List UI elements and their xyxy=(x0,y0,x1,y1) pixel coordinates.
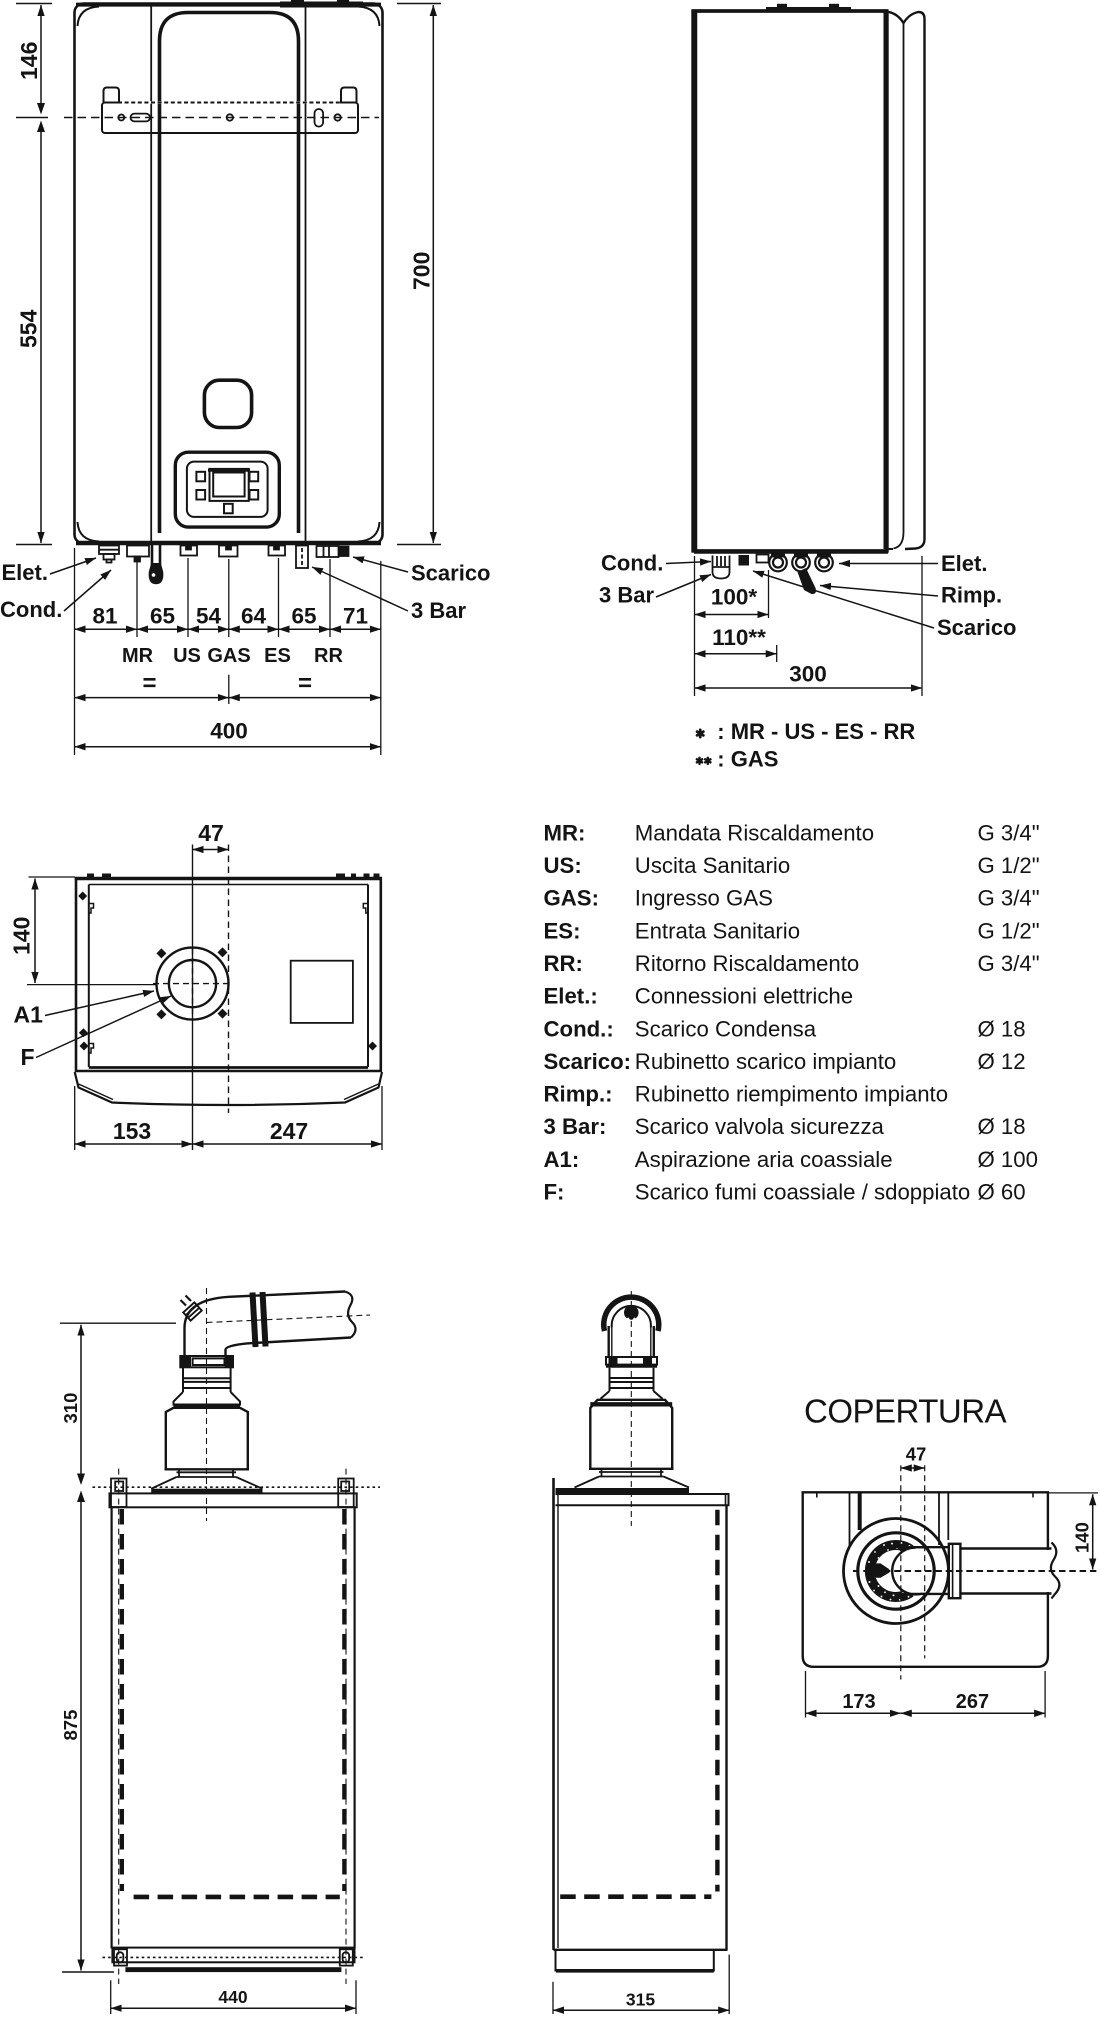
svg-text:: MR - US - ES - RR: : MR - US - ES - RR xyxy=(717,719,915,744)
svg-text:Scarico Condensa: Scarico Condensa xyxy=(635,1016,817,1041)
svg-text:Ø 18: Ø 18 xyxy=(978,1114,1026,1139)
svg-text:Cond.: Cond. xyxy=(0,597,62,622)
svg-text:54: 54 xyxy=(196,604,222,629)
svg-text:Mandata Riscaldamento: Mandata Riscaldamento xyxy=(635,820,874,845)
svg-text:Rubinetto riempimento impianto: Rubinetto riempimento impianto xyxy=(635,1082,948,1107)
svg-text:3 Bar: 3 Bar xyxy=(411,598,466,623)
svg-text:Cond.: Cond. xyxy=(601,551,663,576)
svg-text:Uscita Sanitario: Uscita Sanitario xyxy=(635,853,790,878)
svg-text:GAS:: GAS: xyxy=(544,886,599,911)
svg-text:Scarico: Scarico xyxy=(937,615,1017,640)
svg-text:GAS: GAS xyxy=(207,645,250,667)
svg-text:ES: ES xyxy=(264,645,291,667)
svg-text:=: = xyxy=(142,670,156,697)
svg-text:65: 65 xyxy=(291,604,316,629)
svg-text:Ø 18: Ø 18 xyxy=(978,1016,1026,1041)
svg-text:Connessioni elettriche: Connessioni elettriche xyxy=(635,984,853,1009)
svg-text:US:: US: xyxy=(544,853,582,878)
svg-text:100*: 100* xyxy=(711,585,758,610)
svg-text:3 Bar: 3 Bar xyxy=(599,583,654,608)
svg-text:267: 267 xyxy=(956,1691,989,1713)
svg-text:MR:: MR: xyxy=(544,820,586,845)
svg-text:Rimp.: Rimp. xyxy=(941,583,1002,608)
svg-text:47: 47 xyxy=(198,820,224,846)
svg-text:71: 71 xyxy=(343,604,368,629)
svg-text:COPERTURA: COPERTURA xyxy=(804,1393,1007,1430)
svg-text:Elet.: Elet. xyxy=(2,560,48,585)
svg-text:Scarico fumi coassiale / sdopp: Scarico fumi coassiale / sdoppiato xyxy=(635,1180,970,1205)
svg-text:G 3/4": G 3/4" xyxy=(978,886,1040,911)
svg-text:Scarico:: Scarico: xyxy=(544,1049,632,1074)
svg-text:Ritorno Riscaldamento: Ritorno Riscaldamento xyxy=(635,951,859,976)
svg-text:F:: F: xyxy=(544,1180,565,1205)
svg-text:A1: A1 xyxy=(14,1002,44,1028)
svg-text:G 3/4": G 3/4" xyxy=(978,951,1040,976)
svg-text:173: 173 xyxy=(842,1691,875,1713)
svg-text:3 Bar:: 3 Bar: xyxy=(544,1114,607,1139)
svg-text:140: 140 xyxy=(1072,1522,1093,1553)
svg-text:Elet.: Elet. xyxy=(941,551,987,576)
svg-text:US: US xyxy=(173,645,201,667)
svg-text:700: 700 xyxy=(409,252,435,290)
svg-text:400: 400 xyxy=(210,719,248,744)
svg-text:310: 310 xyxy=(60,1393,81,1424)
svg-text:G 1/2": G 1/2" xyxy=(978,853,1040,878)
svg-text:Scarico: Scarico xyxy=(411,561,491,586)
svg-text:F: F xyxy=(21,1044,35,1070)
svg-text:ES:: ES: xyxy=(544,918,581,943)
svg-text:146: 146 xyxy=(16,42,42,80)
svg-text:Ingresso GAS: Ingresso GAS xyxy=(635,886,773,911)
svg-text:Entrata Sanitario: Entrata Sanitario xyxy=(635,918,800,943)
svg-text:=: = xyxy=(298,670,312,697)
svg-text:Cond.:: Cond.: xyxy=(544,1016,614,1041)
svg-text:Scarico valvola sicurezza: Scarico valvola sicurezza xyxy=(635,1114,885,1139)
svg-text:47: 47 xyxy=(906,1444,927,1465)
svg-text:65: 65 xyxy=(150,604,175,629)
svg-text:Rubinetto scarico impianto: Rubinetto scarico impianto xyxy=(635,1049,896,1074)
svg-text:RR:: RR: xyxy=(544,951,583,976)
svg-text:110**: 110** xyxy=(712,625,766,650)
svg-text:Ø 60: Ø 60 xyxy=(978,1180,1026,1205)
svg-text:300: 300 xyxy=(789,662,827,687)
svg-text:440: 440 xyxy=(218,1987,247,2007)
svg-text:554: 554 xyxy=(16,309,42,348)
svg-text:153: 153 xyxy=(113,1118,151,1144)
svg-text:G 3/4": G 3/4" xyxy=(978,820,1040,845)
svg-text:RR: RR xyxy=(314,645,343,667)
svg-text:Ø 100: Ø 100 xyxy=(978,1147,1038,1172)
svg-text:Ø 12: Ø 12 xyxy=(978,1049,1026,1074)
svg-text:875: 875 xyxy=(60,1710,81,1741)
svg-text:G 1/2": G 1/2" xyxy=(978,918,1040,943)
svg-text:A1:: A1: xyxy=(544,1147,580,1172)
svg-text:81: 81 xyxy=(92,604,117,629)
svg-text:140: 140 xyxy=(9,917,35,955)
svg-text:64: 64 xyxy=(241,604,267,629)
svg-text:MR: MR xyxy=(122,645,154,667)
svg-text:Elet.:: Elet.: xyxy=(544,984,598,1009)
svg-text:247: 247 xyxy=(270,1118,308,1144)
svg-text:Rimp.:: Rimp.: xyxy=(544,1082,613,1107)
svg-text:: GAS: : GAS xyxy=(717,747,778,772)
svg-text:315: 315 xyxy=(626,1990,655,2010)
svg-text:Aspirazione aria coassiale: Aspirazione aria coassiale xyxy=(635,1147,893,1172)
